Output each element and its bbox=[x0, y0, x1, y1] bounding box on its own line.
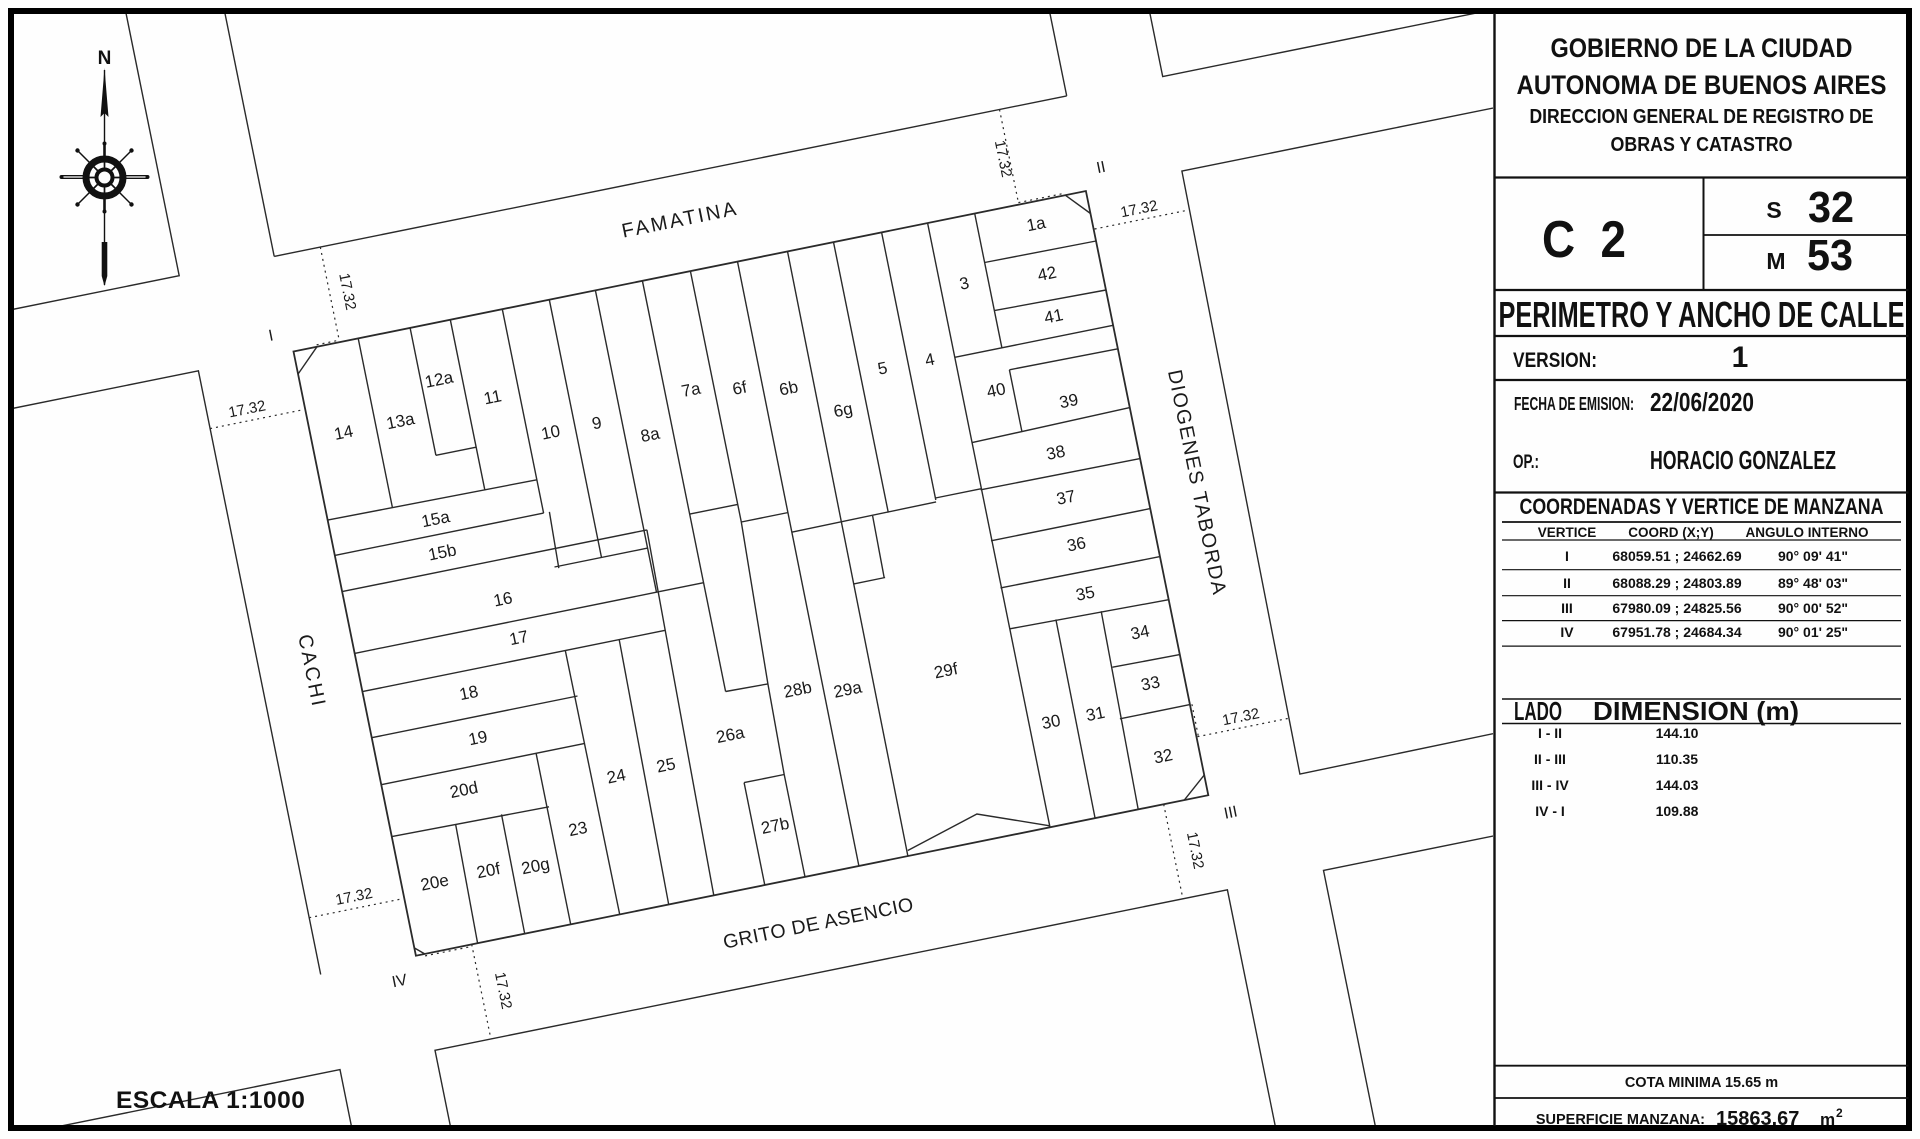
svg-text:32: 32 bbox=[1152, 745, 1174, 767]
svg-text:67951.78 ; 24684.34: 67951.78 ; 24684.34 bbox=[1612, 624, 1741, 640]
svg-text:38: 38 bbox=[1045, 442, 1067, 464]
svg-text:I - II: I - II bbox=[1538, 725, 1562, 741]
svg-text:40: 40 bbox=[985, 379, 1007, 401]
svg-text:ANGULO INTERNO: ANGULO INTERNO bbox=[1746, 525, 1869, 540]
svg-text:67980.09 ; 24825.56: 67980.09 ; 24825.56 bbox=[1612, 600, 1741, 616]
svg-text:COTA MINIMA 15.65 m: COTA MINIMA 15.65 m bbox=[1625, 1075, 1778, 1091]
svg-text:C 2: C 2 bbox=[1542, 211, 1626, 269]
svg-text:89° 48' 03": 89° 48' 03" bbox=[1778, 575, 1848, 591]
svg-text:10: 10 bbox=[540, 421, 562, 443]
svg-text:35: 35 bbox=[1074, 582, 1096, 604]
svg-text:LADO: LADO bbox=[1514, 696, 1562, 726]
svg-text:N: N bbox=[98, 48, 112, 69]
svg-text:18: 18 bbox=[458, 682, 480, 704]
svg-text:42: 42 bbox=[1036, 263, 1058, 285]
svg-text:41: 41 bbox=[1043, 305, 1065, 327]
svg-text:FECHA DE EMISION:: FECHA DE EMISION: bbox=[1514, 394, 1634, 414]
svg-text:144.10: 144.10 bbox=[1656, 725, 1699, 741]
svg-text:ESCALA 1:1000: ESCALA 1:1000 bbox=[116, 1087, 305, 1114]
svg-text:19: 19 bbox=[467, 727, 489, 749]
svg-text:22/06/2020: 22/06/2020 bbox=[1650, 387, 1754, 417]
svg-text:90° 00' 52": 90° 00' 52" bbox=[1778, 600, 1848, 616]
svg-text:23: 23 bbox=[567, 818, 589, 840]
svg-text:II: II bbox=[1563, 575, 1571, 591]
svg-text:III - IV: III - IV bbox=[1531, 777, 1569, 793]
svg-text:53: 53 bbox=[1807, 231, 1853, 280]
svg-text:II - III: II - III bbox=[1534, 751, 1566, 767]
svg-text:GOBIERNO DE LA CIUDAD: GOBIERNO DE LA CIUDAD bbox=[1551, 33, 1853, 63]
svg-text:III: III bbox=[1561, 600, 1573, 616]
svg-text:144.03: 144.03 bbox=[1656, 777, 1699, 793]
svg-text:68088.29 ; 24803.89: 68088.29 ; 24803.89 bbox=[1612, 575, 1741, 591]
svg-text:AUTONOMA DE BUENOS AIRES: AUTONOMA DE BUENOS AIRES bbox=[1517, 70, 1887, 100]
svg-text:IV - I: IV - I bbox=[1535, 803, 1565, 819]
svg-text:COORDENADAS Y VERTICE DE MANZA: COORDENADAS Y VERTICE DE MANZANA bbox=[1520, 494, 1884, 519]
svg-text:30: 30 bbox=[1040, 711, 1062, 733]
svg-text:6g: 6g bbox=[832, 399, 854, 421]
svg-text:14: 14 bbox=[332, 422, 354, 444]
svg-text:33: 33 bbox=[1139, 672, 1161, 694]
svg-text:VERSION:: VERSION: bbox=[1513, 349, 1597, 372]
svg-text:34: 34 bbox=[1129, 621, 1151, 643]
svg-text:16: 16 bbox=[492, 588, 514, 610]
svg-text:DIMENSION (m): DIMENSION (m) bbox=[1593, 696, 1799, 726]
svg-text:11: 11 bbox=[482, 386, 503, 408]
svg-text:109.88: 109.88 bbox=[1656, 803, 1699, 819]
svg-text:32: 32 bbox=[1808, 183, 1854, 232]
svg-text:110.35: 110.35 bbox=[1656, 751, 1698, 767]
svg-text:S: S bbox=[1766, 197, 1781, 223]
svg-text:37: 37 bbox=[1055, 486, 1077, 508]
svg-text:90° 09' 41": 90° 09' 41" bbox=[1778, 548, 1848, 564]
svg-text:SUPERFICIE MANZANA:: SUPERFICIE MANZANA: bbox=[1536, 1112, 1705, 1128]
svg-text:17: 17 bbox=[508, 627, 530, 649]
svg-text:PERIMETRO Y ANCHO DE CALLE: PERIMETRO Y ANCHO DE CALLE bbox=[1499, 294, 1905, 335]
svg-text:I: I bbox=[1565, 548, 1569, 564]
svg-text:36: 36 bbox=[1065, 533, 1087, 555]
svg-text:HORACIO GONZALEZ: HORACIO GONZALEZ bbox=[1650, 445, 1836, 475]
svg-text:24: 24 bbox=[605, 765, 627, 787]
svg-text:IV: IV bbox=[1560, 624, 1574, 640]
svg-text:OBRAS Y CATASTRO: OBRAS Y CATASTRO bbox=[1611, 134, 1793, 156]
svg-text:15863.67: 15863.67 bbox=[1716, 1108, 1799, 1130]
svg-text:6b: 6b bbox=[778, 377, 800, 399]
svg-text:68059.51 ; 24662.69: 68059.51 ; 24662.69 bbox=[1612, 548, 1741, 564]
svg-text:COORD (X;Y): COORD (X;Y) bbox=[1628, 525, 1714, 540]
svg-text:39: 39 bbox=[1058, 390, 1080, 412]
svg-text:2: 2 bbox=[1836, 1106, 1843, 1120]
svg-text:m: m bbox=[1820, 1110, 1835, 1129]
svg-text:1: 1 bbox=[1732, 341, 1749, 374]
svg-text:VERTICE: VERTICE bbox=[1538, 525, 1597, 540]
svg-text:90° 01' 25": 90° 01' 25" bbox=[1778, 624, 1848, 640]
svg-text:OP.:: OP.: bbox=[1513, 452, 1539, 473]
svg-text:25: 25 bbox=[655, 754, 677, 776]
svg-text:31: 31 bbox=[1084, 703, 1106, 725]
svg-text:DIRECCION GENERAL DE REGISTRO: DIRECCION GENERAL DE REGISTRO DE bbox=[1530, 106, 1874, 128]
svg-text:M: M bbox=[1766, 248, 1785, 274]
